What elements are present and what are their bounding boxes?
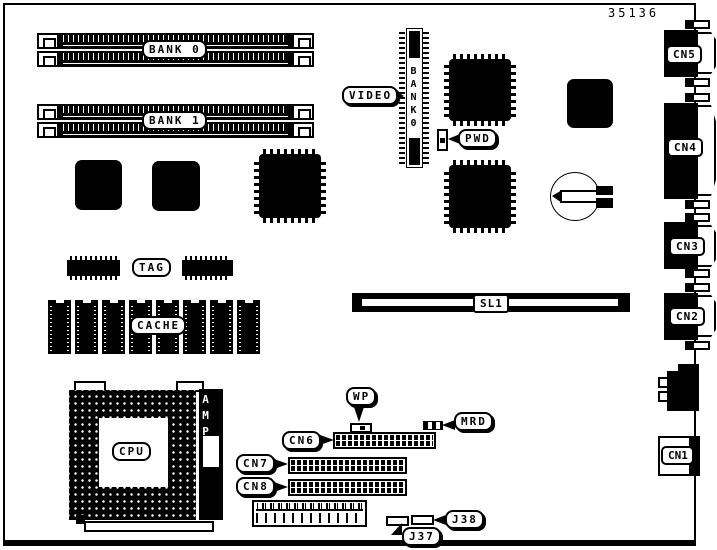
bank1-label: BANK 1 xyxy=(142,111,207,130)
ic-chip xyxy=(152,161,200,211)
slot-key xyxy=(409,138,420,165)
bracket-tab xyxy=(692,283,710,292)
ic-chip xyxy=(75,160,122,210)
cn3-label: CN3 xyxy=(669,237,705,256)
sl1-label: SL1 xyxy=(473,294,509,313)
cpu-lever xyxy=(84,521,214,532)
cpu-label: CPU xyxy=(112,442,151,461)
board-edge-left xyxy=(3,3,5,546)
video-slot-pins-right xyxy=(423,32,429,164)
simm-latch xyxy=(37,122,59,138)
qfp-chip xyxy=(444,160,516,233)
qfp-chip xyxy=(444,54,516,126)
cache-label: CACHE xyxy=(130,316,186,335)
simm-latch xyxy=(292,104,314,120)
slot-key xyxy=(409,31,420,58)
simm-latch xyxy=(292,122,314,138)
j38-connector xyxy=(411,515,434,525)
simm-latch xyxy=(37,33,59,49)
cache-chip xyxy=(102,300,125,354)
bracket-tab xyxy=(692,269,710,278)
battery-clip xyxy=(560,190,598,203)
cn1-label: CN1 xyxy=(661,446,694,465)
board-edge-bottom xyxy=(3,540,696,546)
port-nub xyxy=(658,391,669,402)
bracket-tab xyxy=(692,20,710,29)
amp-window xyxy=(203,436,219,467)
cn7-label: CN7 xyxy=(236,454,275,473)
bracket-tab xyxy=(692,341,710,350)
cn2-label: CN2 xyxy=(669,307,705,326)
bracket-tab xyxy=(692,213,710,222)
qfp-chip xyxy=(254,149,326,223)
video-memory-slot: BANK0 xyxy=(406,28,423,168)
bracket-tab xyxy=(692,200,710,209)
cn6-pin-header xyxy=(333,432,436,449)
tag-sram-chip xyxy=(182,256,233,280)
bank0-label: BANK 0 xyxy=(142,40,207,59)
stacked-port-connector xyxy=(667,371,699,411)
battery-clip-cap xyxy=(596,186,613,208)
amp-label: AMP xyxy=(199,393,223,441)
video-slot-label: BANK0 xyxy=(407,60,422,136)
mrd-label: MRD xyxy=(454,412,493,431)
j37-label: J37 xyxy=(402,527,441,546)
amp-regulator: AMP xyxy=(199,389,223,520)
pwd-label: PWD xyxy=(458,129,497,148)
video-label: VIDEO xyxy=(342,86,398,105)
simm-latch xyxy=(37,104,59,120)
port-nub xyxy=(658,377,669,388)
cache-chip xyxy=(210,300,233,354)
cn7-pin-header xyxy=(288,457,407,474)
cn8-pin-header xyxy=(288,479,407,496)
dip-switch-block xyxy=(252,500,367,527)
cache-chip xyxy=(183,300,206,354)
simm-latch xyxy=(37,51,59,67)
cn8-callout-arrow xyxy=(274,482,288,492)
wp-callout-arrow xyxy=(354,407,364,422)
cn6-label: CN6 xyxy=(282,431,321,450)
motherboard-diagram: 35136 BANK 0 BANK 1 BANK0 VIDEO xyxy=(0,0,717,550)
board-edge-top xyxy=(3,3,696,5)
bracket-tab xyxy=(692,93,710,102)
j37-callout-arrow xyxy=(391,523,402,535)
cn5-label: CN5 xyxy=(666,45,702,64)
cache-chip xyxy=(237,300,260,354)
tag-sram-chip xyxy=(67,256,120,280)
tag-label: TAG xyxy=(132,258,171,277)
j38-label: J38 xyxy=(445,510,484,529)
pwd-jumper xyxy=(437,129,448,151)
part-number: 35136 xyxy=(608,6,659,20)
cn4-label: CN4 xyxy=(667,138,703,157)
simm-latch xyxy=(292,33,314,49)
ic-chip xyxy=(567,79,613,128)
cn6-callout-arrow xyxy=(320,435,334,445)
simm-latch xyxy=(292,51,314,67)
mrd-jumper xyxy=(423,421,443,430)
bracket-tab xyxy=(692,78,710,87)
cn7-callout-arrow xyxy=(274,459,288,469)
cache-chip xyxy=(48,300,71,354)
cache-chip xyxy=(75,300,98,354)
cn8-label: CN8 xyxy=(236,477,275,496)
wp-label: WP xyxy=(346,387,376,406)
